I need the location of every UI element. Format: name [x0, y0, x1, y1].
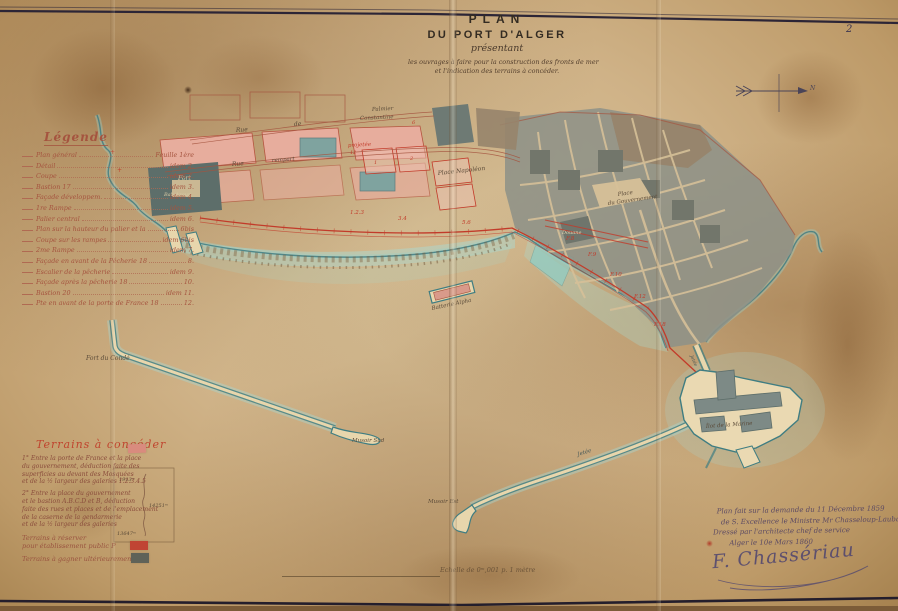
fort-conde-label: Fort du Condé: [85, 355, 130, 362]
legend-dash: [22, 156, 33, 157]
parcel-number: 2: [409, 156, 413, 162]
legend-item: Plan sur la hauteur du palier et la6bis: [22, 225, 194, 236]
sheet-ref: F.12: [633, 294, 646, 300]
legend-item-ref: idem 6bis: [163, 236, 195, 244]
legend-item-label: Façade en avant de la Pêcherie 18: [36, 257, 147, 265]
musoir-sud-label: Musoir Sud: [351, 438, 385, 444]
legend: Légende Plan généralFeuille 1ère Détaili…: [22, 126, 194, 310]
legend-item-label: Coupe sur les rampes: [36, 236, 106, 244]
legend-dash: [22, 198, 33, 199]
parcel-number: 1: [374, 160, 377, 166]
sheet-ref: F.8: [565, 236, 575, 242]
legend-item-ref: idem 2.: [170, 172, 194, 180]
south-jetty: [453, 420, 696, 533]
legend-dash: [22, 188, 33, 189]
old-city-blocks: [500, 108, 795, 348]
legend-leader: [77, 246, 168, 252]
concessions-paragraph: 1° Entre la porte de France et la place …: [22, 455, 232, 486]
legend-item-ref: idem 6.: [170, 215, 194, 223]
concessions-paragraph: 2° Entre la place du gouvernement et le …: [22, 490, 232, 529]
legend-item: Façade développem.idem 4.: [22, 193, 194, 204]
legend-item: Palier centralidem 6.: [22, 215, 194, 226]
street-label: de: [294, 120, 302, 128]
legend-item-ref: idem 4.: [170, 193, 194, 201]
sheet-ref: 3.4: [398, 216, 407, 222]
legend-dash: [22, 304, 33, 305]
legend-dash: [22, 251, 33, 252]
title-line: DU PORT D'ALGER: [408, 29, 586, 41]
legend-leader: [79, 151, 153, 157]
legend-leader: [108, 236, 160, 242]
legend-item: Détailidem 2.: [22, 162, 194, 173]
legend-item: Coupeidem 2.: [22, 172, 194, 183]
legend-leader: [59, 172, 168, 178]
legend-dash: [22, 283, 33, 284]
legend-item-label: 2me Rampe: [36, 246, 75, 254]
legend-item-label: 1re Rampe: [36, 204, 72, 212]
parcel-number: 12: [350, 150, 356, 156]
concessions-note: Terrains à concéder 1° Entre la porte de…: [22, 438, 232, 563]
scanned-map-sheet: 1913ᵐ 14251ᵐ 13647ᵐ N Fort Bab-Azoun Rue…: [0, 0, 898, 611]
legend-leader: [57, 162, 168, 168]
legend-heading: Légende: [44, 130, 108, 146]
sheet-ref: 1.2.3: [350, 210, 364, 216]
legend-leader: [82, 215, 168, 221]
legend-item-ref: idem 11.: [166, 289, 194, 297]
legend-item: Bastion 20idem 11.: [22, 289, 194, 300]
street-label: Rue: [231, 160, 245, 168]
legend-leader: [149, 257, 186, 263]
legend-item: Plan généralFeuille 1ère: [22, 151, 194, 162]
street-label: Constantine: [360, 114, 395, 122]
scale-bar-line: [282, 576, 440, 577]
reserve-color-swatch: [130, 541, 148, 550]
page-number: 2: [846, 24, 852, 35]
musoir-est-label: Musoir Est: [427, 499, 459, 505]
title-description: et l'indication des terrains à concéder.: [408, 67, 586, 75]
legend-dash: [22, 177, 33, 178]
legend-item-ref: idem 2.: [170, 162, 194, 170]
jetee-label: Jetée: [576, 447, 593, 458]
legend-item-label: Bastion 17: [36, 183, 71, 191]
legend-item: 1re Rampeidem 5.: [22, 204, 194, 215]
legend-dash: [22, 209, 33, 210]
title-subtitle: présentant: [408, 43, 586, 54]
title-block: PLAN DU PORT D'ALGER présentant les ouvr…: [408, 12, 586, 75]
street-label: Palmier: [371, 106, 394, 113]
sheet-ref: 5.6: [462, 220, 471, 226]
legend-item-label: Palier central: [36, 215, 80, 223]
legend-item-ref: Feuille 1ère: [155, 151, 194, 159]
north-breakwater: [112, 320, 380, 444]
title-line: PLAN: [408, 12, 586, 26]
street-label: projetée: [348, 141, 372, 149]
sheet-ref: F.9: [587, 252, 597, 258]
legend-leader: [73, 289, 164, 295]
legend-item-label: Façade après la pêcherie 18: [36, 278, 127, 286]
legend-item-ref: 6bis: [181, 225, 194, 233]
legend-leader: [129, 278, 181, 284]
legend-item-ref: idem 7.: [170, 246, 194, 254]
legend-dash: [22, 272, 33, 273]
legend-item: Escalier de la pêcherieidem 9.: [22, 268, 194, 279]
compass-north-label: N: [809, 85, 816, 92]
legend-dash: [22, 262, 33, 263]
legend-leader: [73, 183, 168, 189]
legend-leader: [104, 193, 168, 199]
legend-item-ref: 12.: [184, 299, 194, 307]
legend-item-label: Pte en avant de la porte de France 18: [36, 299, 159, 307]
street-label: Rue: [235, 126, 249, 134]
legend-item-label: Coupe: [36, 172, 57, 180]
legend-item: Coupe sur les rampesidem 6bis: [22, 236, 194, 247]
legend-item-label: Plan sur la hauteur du palier et la: [36, 225, 146, 233]
legend-leader: [112, 268, 168, 274]
legend-dash: [22, 230, 33, 231]
reserve-note: Terrains à réserver pour établissement p…: [22, 534, 232, 550]
legend-item-ref: idem 9.: [170, 268, 194, 276]
legend-item-label: Façade développem.: [36, 193, 102, 201]
legend-item: Façade en avant de la Pêcherie 188.: [22, 257, 194, 268]
legend-dash: [22, 166, 33, 167]
north-arrow: N: [736, 74, 816, 112]
legend-leader: [148, 225, 179, 231]
legend-leader: [161, 299, 182, 305]
legend-item: 2me Rampeidem 7.: [22, 246, 194, 257]
legend-item-label: Détail: [36, 162, 55, 170]
legend-dash: [22, 219, 33, 220]
gain-color-swatch: [131, 553, 149, 563]
parcel-number: 6: [412, 120, 416, 126]
legend-dash: [22, 294, 33, 295]
legend-item: Pte en avant de la porte de France 1812.: [22, 299, 194, 310]
legend-leader: [74, 204, 168, 210]
title-description: les ouvrages à faire pour la constructio…: [408, 58, 586, 66]
legend-item-ref: 10.: [184, 278, 194, 286]
sheet-ref: F.10: [609, 272, 622, 278]
legend-item-ref: 8.: [188, 257, 194, 265]
legend-item-ref: idem 5.: [170, 204, 194, 212]
legend-item: Bastion 17idem 3.: [22, 183, 194, 194]
street-label: rempart: [272, 156, 296, 164]
legend-item-label: Plan général: [36, 151, 77, 159]
gain-note: Terrains à gagner ultérieurement: [22, 555, 232, 563]
legend-dash: [22, 241, 33, 242]
dedication-block: Plan fait sur la demande du 11 Décembre …: [703, 503, 894, 548]
legend-item-ref: idem 3.: [170, 183, 194, 191]
scale-text: Echelle de 0ᵐ,001 p. 1 mètre: [440, 566, 535, 574]
legend-item-label: Bastion 20: [36, 289, 71, 297]
sheet-ref: F.18: [653, 322, 666, 328]
new-quarter-blocks: [148, 92, 520, 216]
legend-item-label: Escalier de la pêcherie: [36, 268, 110, 276]
legend-item: Façade après la pêcherie 1810.: [22, 278, 194, 289]
concede-color-swatch: [128, 444, 146, 454]
